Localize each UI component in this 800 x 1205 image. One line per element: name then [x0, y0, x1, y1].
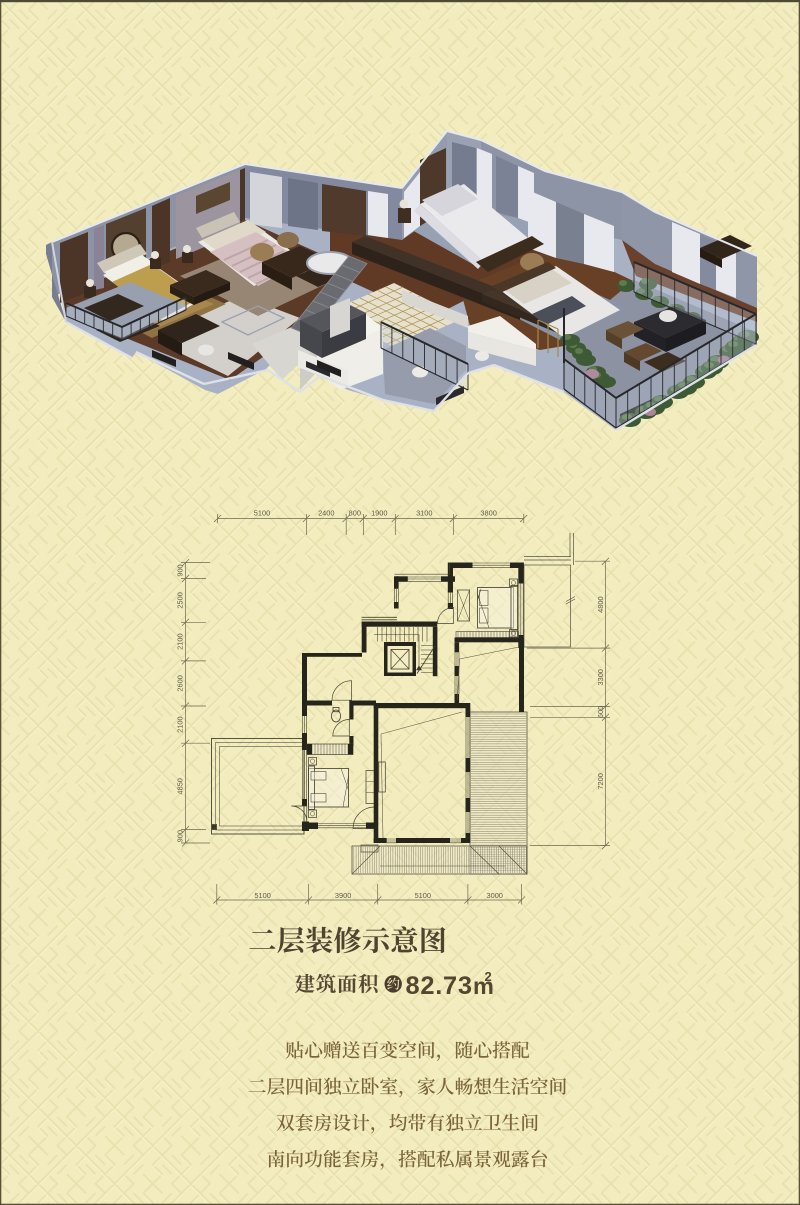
- svg-text:2600: 2600: [176, 675, 185, 691]
- svg-text:4800: 4800: [596, 596, 605, 612]
- svg-text:3100: 3100: [416, 509, 432, 518]
- svg-text:3000: 3000: [486, 891, 502, 900]
- svg-text:3300: 3300: [596, 669, 605, 685]
- svg-text:900: 900: [176, 830, 185, 842]
- svg-text:2: 2: [485, 969, 492, 984]
- svg-text:5100: 5100: [254, 891, 270, 900]
- svg-text:2100: 2100: [176, 716, 185, 732]
- svg-text:2400: 2400: [318, 509, 334, 518]
- svg-text:800: 800: [349, 509, 361, 518]
- svg-text:1900: 1900: [371, 509, 387, 518]
- svg-text:3800: 3800: [480, 509, 496, 518]
- svg-text:82.73: 82.73: [406, 972, 473, 1000]
- svg-text:2100: 2100: [176, 633, 185, 649]
- svg-text:7200: 7200: [596, 773, 605, 789]
- svg-text:3900: 3900: [335, 891, 351, 900]
- svg-text:2500: 2500: [176, 592, 185, 608]
- svg-text:5100: 5100: [415, 891, 431, 900]
- svg-text:900: 900: [176, 564, 185, 576]
- svg-text:4850: 4850: [176, 778, 185, 794]
- svg-text:600: 600: [596, 706, 605, 718]
- svg-text:5100: 5100: [254, 509, 270, 518]
